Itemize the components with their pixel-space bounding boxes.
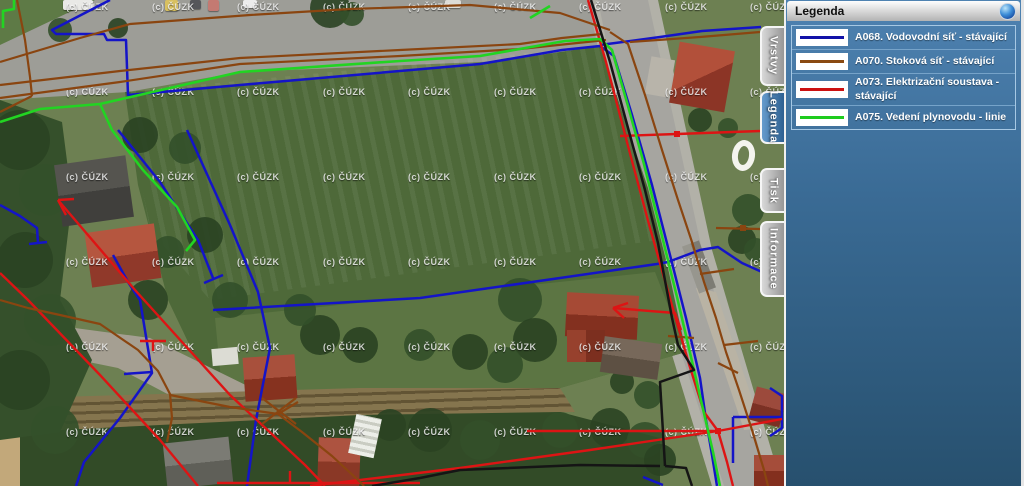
gas-line xyxy=(100,104,195,251)
legend-row: A070. Stoková síť - stávající xyxy=(792,50,1015,74)
legend-panel-title: Legenda xyxy=(795,4,844,18)
gas-line xyxy=(0,39,720,486)
tab-vrstvy[interactable]: Vrstvy xyxy=(760,26,785,86)
sewer-line xyxy=(716,228,760,229)
tab-legenda[interactable]: Legenda xyxy=(760,91,785,144)
water-line xyxy=(29,242,47,244)
boundary-line xyxy=(591,0,694,466)
map-application-window: (c) ČÚZK(c) ČÚZK(c) ČÚZK(c) ČÚZK(c) ČÚZK… xyxy=(0,0,1024,486)
legend-line-symbol xyxy=(800,88,844,91)
panel-collapse-sphere-icon[interactable] xyxy=(999,3,1016,20)
legend-panel: Legenda A068. Vodovodní síť - stávajícíA… xyxy=(784,0,1024,486)
tab-informace[interactable]: Informace xyxy=(760,221,785,297)
legend-line-symbol xyxy=(800,36,844,39)
power-line xyxy=(620,131,760,136)
power-line xyxy=(0,273,198,486)
water-line xyxy=(118,130,213,278)
legend-items-box: A068. Vodovodní síť - stávajícíA070. Sto… xyxy=(791,25,1016,130)
gas-line xyxy=(3,0,14,28)
sewer-line xyxy=(724,341,758,345)
legend-label: A068. Vodovodní síť - stávající xyxy=(855,31,1007,45)
sewer-line xyxy=(700,269,734,274)
legend-line-symbol xyxy=(800,60,844,63)
power-line xyxy=(588,0,733,486)
power-line xyxy=(310,431,718,486)
sewer-line xyxy=(630,32,760,42)
power-node-marker xyxy=(715,428,721,434)
legend-label: A075. Vedení plynovodu - linie xyxy=(855,111,1006,125)
power-line xyxy=(613,303,628,308)
legend-line-symbol xyxy=(800,116,844,119)
power-node-marker xyxy=(674,131,680,137)
legend-row: A075. Vedení plynovodu - linie xyxy=(792,106,1015,129)
water-line xyxy=(643,477,663,485)
power-line xyxy=(58,199,74,200)
water-line xyxy=(213,262,668,310)
legend-row: A073. Elektrizační soustava - stávající xyxy=(792,74,1015,106)
legend-swatch xyxy=(796,29,848,46)
water-line xyxy=(770,388,782,436)
sewer-line xyxy=(170,395,364,486)
water-line xyxy=(124,372,152,374)
legend-swatch xyxy=(796,53,848,70)
legend-row: A068. Vodovodní síť - stávající xyxy=(792,26,1015,50)
legend-swatch xyxy=(796,81,848,98)
legend-label: A070. Stoková síť - stávající xyxy=(855,55,994,69)
tab-tisk[interactable]: Tisk xyxy=(760,168,785,213)
sewer-line xyxy=(718,363,738,373)
water-line xyxy=(76,255,152,486)
legend-swatch xyxy=(796,109,848,126)
water-line xyxy=(0,205,38,243)
legend-panel-header[interactable]: Legenda xyxy=(787,1,1020,21)
legend-label: A073. Elektrizační soustava - stávající xyxy=(855,76,1011,103)
sewer-line xyxy=(0,300,172,442)
sewer-node-marker xyxy=(740,225,746,231)
boundary-line xyxy=(665,466,692,486)
